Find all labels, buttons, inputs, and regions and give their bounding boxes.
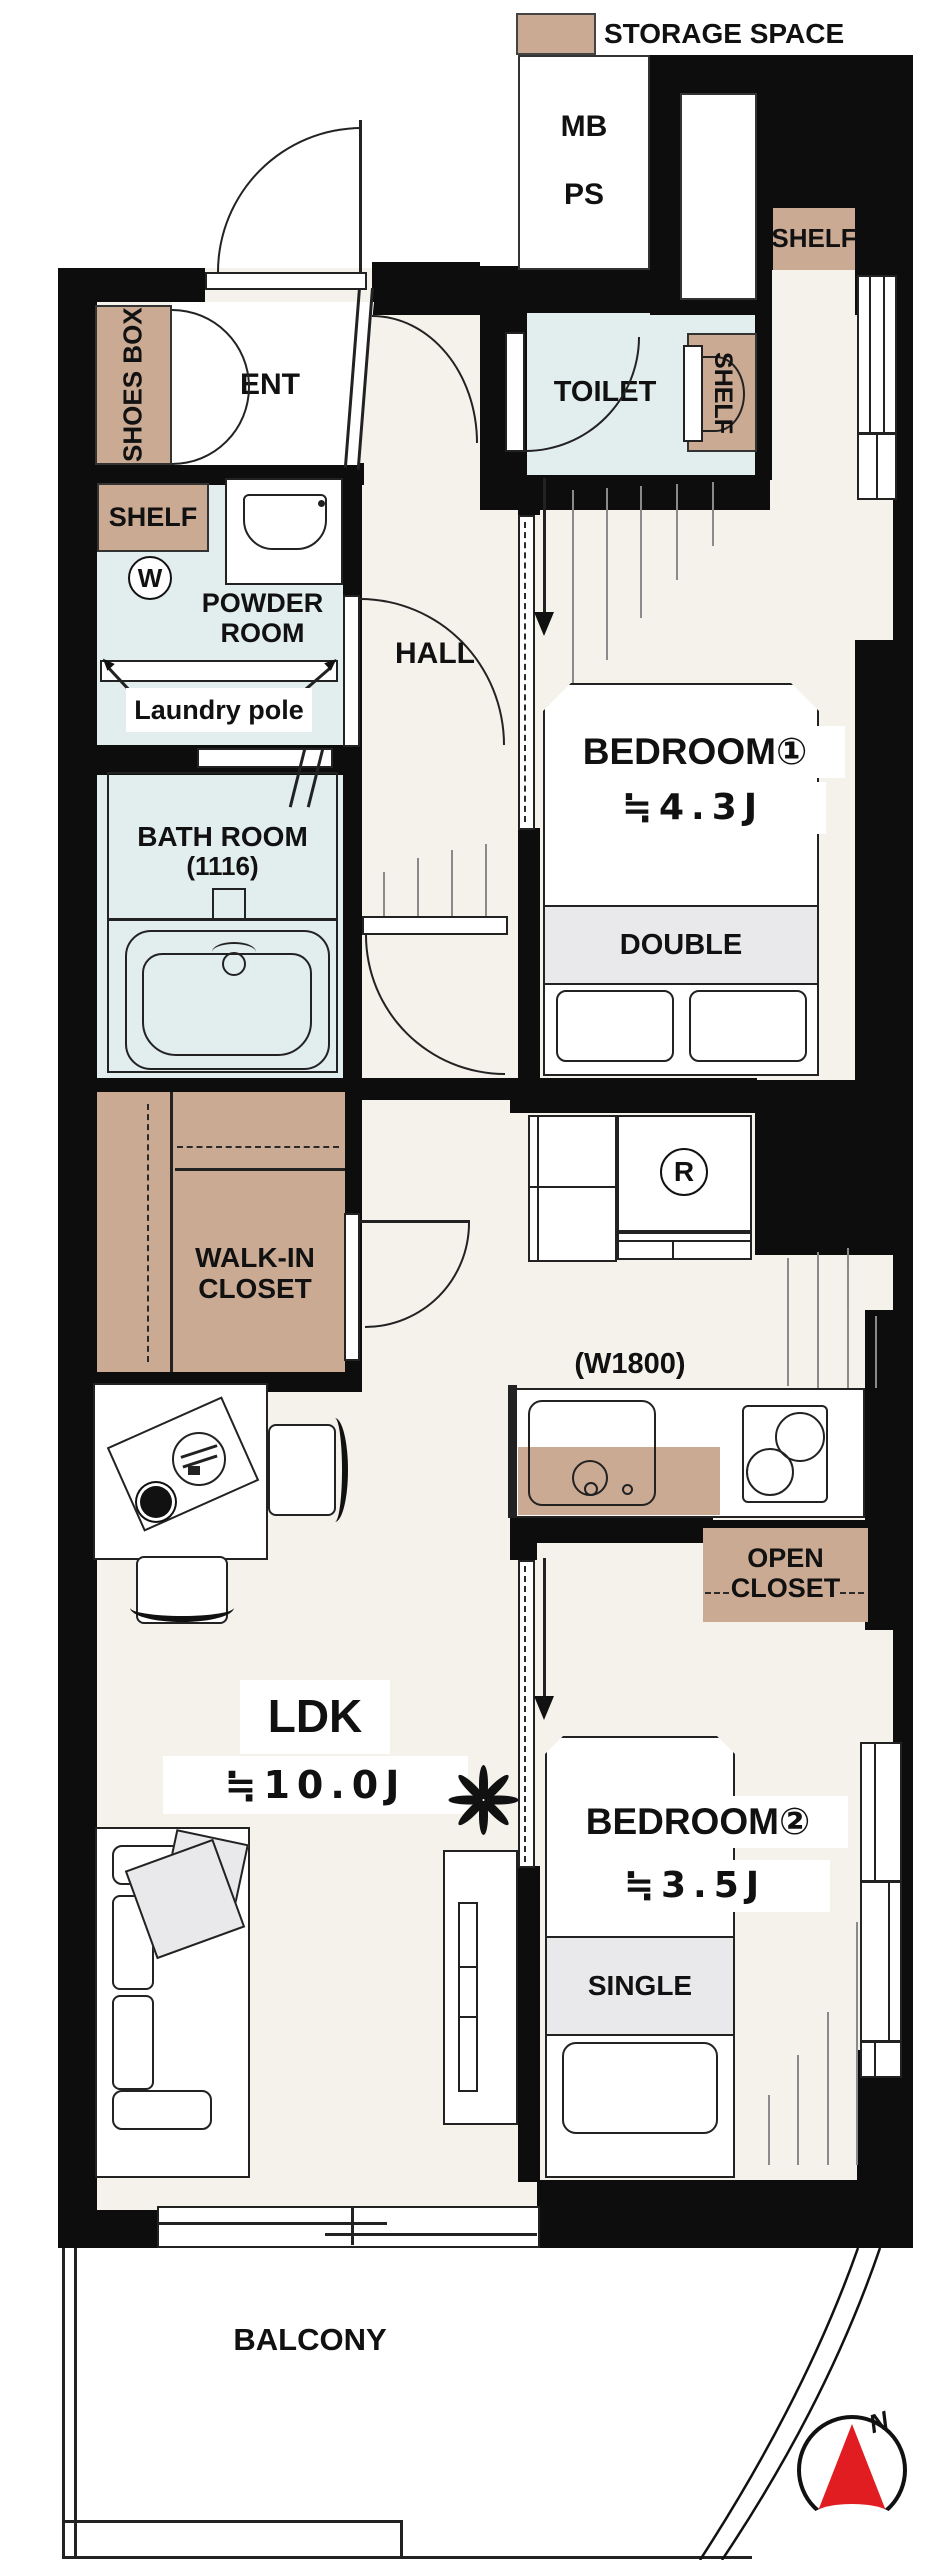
wall-left bbox=[58, 268, 97, 2248]
bath-counter bbox=[212, 888, 246, 920]
legend-storage-swatch bbox=[516, 13, 596, 55]
window-north-sash3 bbox=[876, 434, 878, 498]
powder-sink bbox=[243, 494, 327, 550]
cabinet-upper bbox=[528, 1115, 617, 1188]
powder-faucet bbox=[318, 500, 325, 507]
entrance-door-swing bbox=[217, 127, 362, 272]
sofa-armrest-bottom bbox=[112, 2090, 212, 2130]
hall-label: HALL bbox=[385, 633, 485, 675]
laundry-pole-bar bbox=[100, 660, 338, 682]
kitchen-width-label: (W1800) bbox=[540, 1346, 720, 1382]
hatch-corridor-1 bbox=[787, 1258, 789, 1386]
wic-door bbox=[344, 1213, 360, 1361]
window-north bbox=[857, 275, 897, 500]
mb-ps-box: MB PS bbox=[518, 55, 650, 270]
hatch-br2-3 bbox=[797, 2055, 799, 2165]
window-br2-sash2 bbox=[888, 1882, 890, 2040]
kitchen-drain bbox=[622, 1484, 633, 1495]
shoes-box-label: SHOES BOX bbox=[120, 308, 147, 463]
bedroom1-slide-arrow-line bbox=[543, 478, 546, 614]
ps-label: PS bbox=[520, 175, 648, 215]
bath-threshold bbox=[197, 748, 333, 768]
sofa-back-cushion2 bbox=[112, 1995, 154, 2090]
hatch-hall-2 bbox=[417, 858, 419, 918]
shelf-top-right: SHELF bbox=[773, 208, 855, 270]
hatch-br2-1 bbox=[856, 1922, 858, 2165]
north-arrow-notch bbox=[812, 2504, 892, 2528]
cabinet-lower bbox=[528, 1186, 617, 1262]
toilet-shelf-label: SHELF bbox=[695, 335, 751, 450]
bedroom2-name: BEDROOM② bbox=[548, 1796, 848, 1848]
desk-food3 bbox=[188, 1466, 200, 1475]
bedroom1-name: BEDROOM① bbox=[545, 726, 845, 778]
bed-single-band: SINGLE bbox=[545, 1936, 735, 2036]
wic-hanger-pipe-v bbox=[147, 1104, 150, 1362]
bath-label: BATH ROOM (1116) bbox=[115, 818, 330, 884]
bedroom2-sliding-track bbox=[524, 1566, 527, 1862]
bedroom1-size: ≒4.3J bbox=[560, 782, 826, 834]
tv-stand bbox=[443, 1850, 518, 2125]
balcony-sliding-door bbox=[157, 2206, 540, 2248]
fridge-counter bbox=[617, 1232, 752, 1260]
hatch-br1-2 bbox=[606, 488, 608, 660]
wall-br2-top bbox=[510, 1518, 537, 1560]
wall-br1-below-door bbox=[518, 828, 540, 1080]
wall-bath-right bbox=[343, 775, 362, 1080]
legend-storage-label: STORAGE SPACE bbox=[604, 15, 934, 53]
balcony-label: BALCONY bbox=[180, 2318, 440, 2362]
powder-room-label: POWDER ROOM bbox=[180, 586, 345, 650]
cabinet-edge-line bbox=[537, 1117, 539, 1260]
tv-base bbox=[458, 1966, 478, 2018]
hatch-corridor-2 bbox=[817, 1252, 819, 1388]
hatch-br2-2 bbox=[827, 2012, 829, 2165]
hatch-br1-4 bbox=[676, 484, 678, 580]
wall-bottom-right bbox=[537, 2180, 913, 2248]
ldk-size: ≒10.0J bbox=[163, 1756, 468, 1814]
bed-double-label: DOUBLE bbox=[545, 907, 817, 983]
balcony-step-line bbox=[400, 2520, 403, 2558]
open-closet-dash-right bbox=[840, 1592, 864, 1595]
kitchen-burner2 bbox=[746, 1448, 794, 1496]
window-br2-rail1 bbox=[862, 1880, 900, 1883]
bedroom2-slide-arrow-head bbox=[534, 1696, 554, 1720]
fridge-counter-split bbox=[672, 1242, 674, 1260]
open-closet-dash-left bbox=[705, 1592, 729, 1595]
hatch-hall-4 bbox=[485, 844, 487, 918]
balcony-door-rail2 bbox=[325, 2233, 537, 2236]
wall-top-left bbox=[58, 268, 205, 302]
hatch-br2-4 bbox=[768, 2095, 770, 2165]
balcony-left-line2 bbox=[74, 2248, 77, 2558]
floor-patch-below-shelf bbox=[772, 270, 855, 315]
window-north-sash2 bbox=[883, 277, 885, 432]
desk-cup bbox=[140, 1486, 172, 1518]
hatch-br1-1 bbox=[572, 490, 574, 705]
bathtub-faucet-arc bbox=[212, 942, 256, 962]
wic-shelf-line bbox=[175, 1168, 345, 1171]
bedroom2-size: ≒3.5J bbox=[560, 1860, 830, 1912]
balcony-door-divider bbox=[351, 2208, 354, 2245]
walk-in-closet bbox=[97, 1092, 345, 1372]
washer-symbol: W bbox=[128, 556, 172, 600]
wic-hanger-pipe-h bbox=[177, 1146, 339, 1149]
window-br2-rail2 bbox=[862, 2040, 900, 2043]
bed-double-band: DOUBLE bbox=[543, 905, 819, 985]
hatch-br1-5 bbox=[712, 482, 714, 546]
fridge-counter-line bbox=[617, 1240, 752, 1242]
wall-opencloset-top bbox=[713, 1520, 868, 1528]
bed-single-label: SINGLE bbox=[547, 1938, 733, 2034]
shelf-powder: SHELF bbox=[97, 483, 209, 552]
wall-mid-bar2 bbox=[510, 1096, 757, 1113]
wall-ent-right bbox=[372, 262, 480, 315]
wic-divider bbox=[170, 1092, 173, 1372]
kitchen-faucet-inner bbox=[584, 1482, 598, 1496]
toilet-door bbox=[505, 332, 525, 452]
hatch-hall-1 bbox=[383, 872, 385, 918]
wall-br1-above-door bbox=[518, 475, 540, 515]
shoes-box: SHOES BOX bbox=[95, 305, 172, 465]
bed-double-pillow1 bbox=[556, 990, 674, 1062]
balcony-bottom-line1 bbox=[62, 2520, 402, 2523]
wall-kitchen-right bbox=[865, 1310, 913, 1630]
bedroom1-slide-arrow-head bbox=[534, 612, 554, 636]
wall-br2-mid bbox=[518, 1866, 540, 2182]
window-north-sash1 bbox=[869, 277, 871, 432]
bed-single-pillow bbox=[562, 2042, 718, 2134]
powder-door bbox=[343, 595, 360, 747]
floor-plan: STORAGE SPACE SHOES BOX SHELF SHELF bbox=[0, 0, 936, 2560]
wic-label: WALK-IN CLOSET bbox=[160, 1240, 350, 1306]
wall-fridge-block bbox=[755, 1080, 913, 1255]
bedroom2-slide-arrow-line bbox=[543, 1558, 546, 1698]
fridge-symbol: R bbox=[660, 1148, 708, 1196]
balcony-door-rail1 bbox=[159, 2222, 387, 2225]
bed-double-pillow2 bbox=[689, 990, 807, 1062]
hatch-corridor-3 bbox=[847, 1248, 849, 1388]
hatch-hall-3 bbox=[451, 850, 453, 918]
pipe-space-box bbox=[680, 93, 757, 300]
entrance-threshold bbox=[205, 272, 367, 290]
bedroom1-sliding-track bbox=[524, 522, 527, 822]
balcony-left-line1 bbox=[62, 2248, 65, 2558]
ldk-name: LDK bbox=[240, 1680, 390, 1754]
wall-right-bedroom1 bbox=[855, 640, 913, 1095]
mb-label: MB bbox=[520, 107, 648, 147]
window-br2-sash3 bbox=[874, 2042, 876, 2076]
plant bbox=[448, 1765, 518, 1835]
hatch-corridor-4 bbox=[875, 1316, 877, 1388]
wall-under-counter bbox=[510, 1518, 713, 1543]
hall-ldk-door-lintel bbox=[362, 916, 508, 935]
window-br2-sash1 bbox=[874, 1744, 876, 1882]
wall-bottom-left bbox=[58, 2210, 157, 2248]
window-bedroom2 bbox=[860, 1742, 902, 2078]
hatch-br1-3 bbox=[640, 486, 642, 618]
laundry-pole-label: Laundry pole bbox=[126, 688, 312, 732]
